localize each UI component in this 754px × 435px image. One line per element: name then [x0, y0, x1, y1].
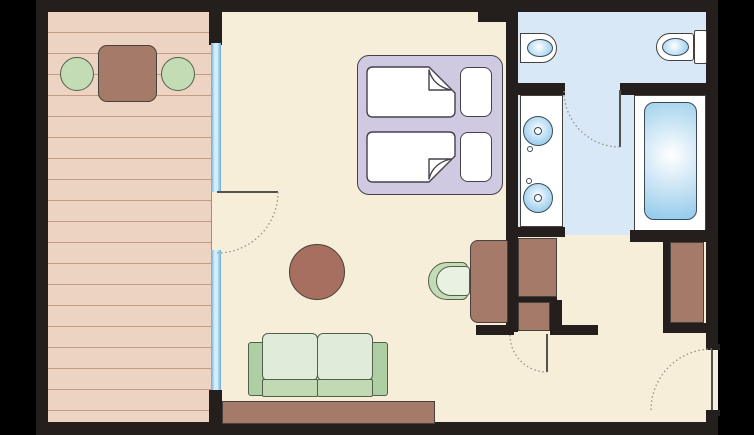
sofa-back-right — [317, 333, 373, 381]
balcony-chair-left — [60, 57, 94, 91]
sofa-seat-right — [317, 379, 373, 397]
closet-door-leaf — [546, 334, 548, 372]
desk-chair-seat — [436, 266, 470, 296]
balcony-table — [98, 45, 157, 102]
closet-upper — [518, 238, 557, 297]
pillow-upper — [460, 67, 492, 117]
sink-lower-tap — [526, 178, 532, 184]
wall-below-vanity — [506, 227, 565, 237]
balcony-window-lower — [211, 250, 221, 390]
bidet-basin — [527, 39, 553, 57]
wall-top-step — [478, 12, 506, 22]
wall-above-wardrobe — [630, 230, 706, 242]
wc-door-leaf — [619, 90, 621, 147]
sideboard — [222, 401, 435, 424]
desk — [470, 240, 508, 323]
wall-top — [36, 0, 718, 12]
wall-wardrobe-left — [663, 242, 670, 333]
wc-partition-left — [518, 83, 565, 95]
floor-plan — [0, 0, 754, 435]
balcony-wall-stub-bottom — [209, 390, 222, 423]
wc-partition-right — [620, 83, 706, 95]
wall-hall-top — [550, 325, 598, 335]
sink-upper-tap — [527, 146, 533, 152]
closet-lower — [518, 302, 550, 331]
pillow-lower — [460, 132, 492, 182]
balcony-door-leaf — [217, 191, 278, 193]
round-table — [289, 244, 345, 300]
toilet-seat — [662, 38, 689, 56]
wall-right-upper — [706, 0, 718, 350]
balcony-wall-stub-top — [209, 0, 222, 45]
sink-upper-drain — [534, 127, 542, 135]
wall-below-wardrobe — [663, 323, 706, 333]
wardrobe — [670, 242, 704, 323]
sofa-armrest-right — [371, 342, 388, 396]
wall-left — [36, 0, 48, 435]
balcony-window-upper — [211, 43, 221, 192]
wall-below-desk — [476, 325, 514, 335]
entry-jamb-bottom — [706, 410, 720, 416]
sink-lower-drain — [534, 194, 542, 202]
sofa-back-left — [262, 333, 318, 381]
balcony-chair-right — [161, 57, 195, 91]
toilet-tank — [694, 30, 707, 64]
entry-jamb-top — [706, 344, 720, 350]
entry-door-leaf — [711, 350, 713, 410]
sofa-seat-left — [262, 379, 318, 397]
bathtub — [644, 102, 697, 220]
balcony-door-threshold — [211, 192, 221, 250]
